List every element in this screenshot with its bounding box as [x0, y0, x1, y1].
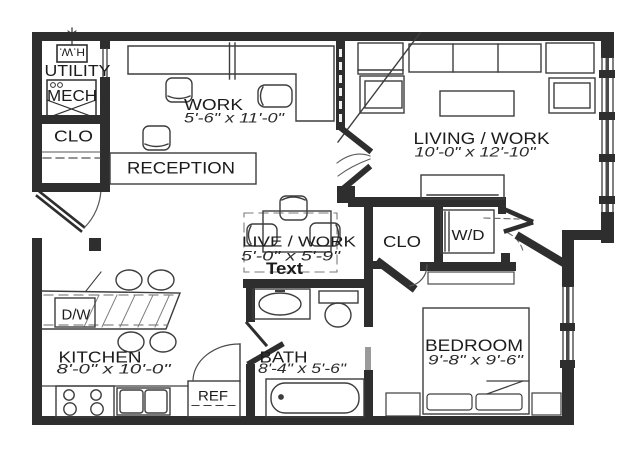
svg-text:REF: REF [198, 388, 228, 404]
svg-text:9'-8" x 9'-6": 9'-8" x 9'-6" [428, 353, 525, 368]
svg-text:D/W: D/W [62, 307, 92, 324]
svg-text:8'-4" x 5'-6": 8'-4" x 5'-6" [258, 361, 348, 376]
svg-text:UTILITY: UTILITY [45, 63, 111, 80]
svg-text:H.W.: H.W. [59, 46, 85, 58]
svg-text:RECEPTION: RECEPTION [127, 160, 235, 178]
svg-text:CLO: CLO [54, 129, 93, 146]
svg-text:10'-0" x 12'-10": 10'-0" x 12'-10" [415, 145, 538, 160]
svg-text:Text: Text [266, 260, 304, 278]
svg-text:5'-6" x 11'-0": 5'-6" x 11'-0" [184, 111, 286, 126]
svg-text:MECH: MECH [47, 88, 97, 105]
svg-text:W/D: W/D [452, 227, 485, 244]
svg-text:8'-0" x 10'-0": 8'-0" x 10'-0" [57, 362, 173, 377]
svg-text:CLO: CLO [383, 234, 421, 251]
